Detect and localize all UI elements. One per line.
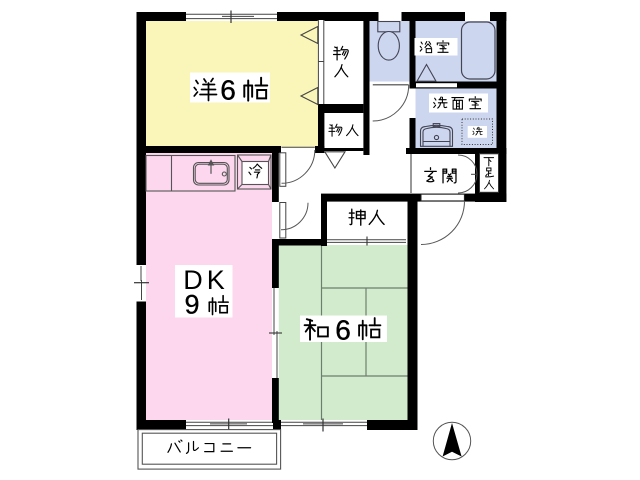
svg-text:6: 6 [220, 75, 236, 106]
svg-text:6: 6 [335, 315, 351, 346]
svg-text:9: 9 [184, 290, 199, 320]
